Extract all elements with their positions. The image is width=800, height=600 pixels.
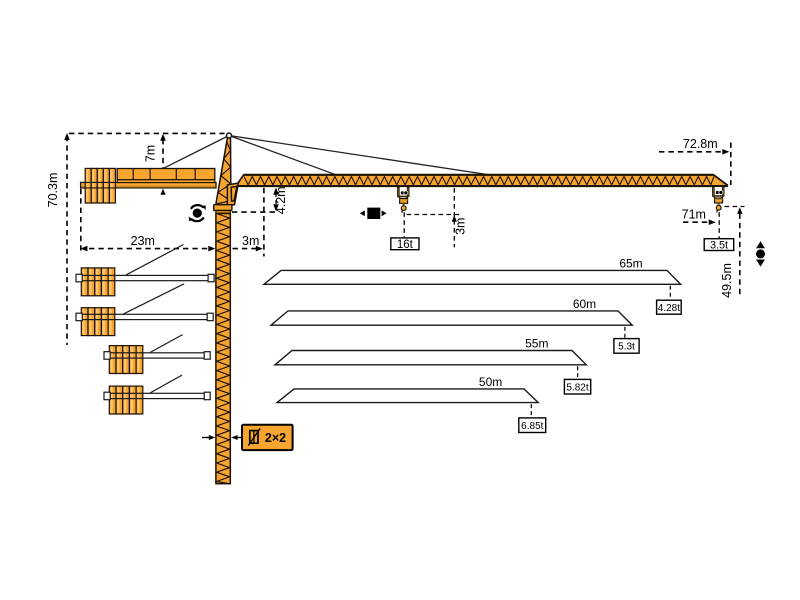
svg-text:6.85t: 6.85t <box>521 421 543 432</box>
svg-text:4.28t: 4.28t <box>658 303 680 314</box>
svg-text:70.3m: 70.3m <box>46 173 60 208</box>
svg-text:65m: 65m <box>619 257 642 271</box>
svg-text:55m: 55m <box>525 337 548 351</box>
svg-text:5.3t: 5.3t <box>618 342 635 353</box>
svg-text:5.82t: 5.82t <box>566 382 588 393</box>
svg-text:16t: 16t <box>397 239 414 251</box>
svg-text:3.5t: 3.5t <box>710 239 728 251</box>
svg-text:60m: 60m <box>573 297 596 311</box>
svg-text:7m: 7m <box>144 145 158 162</box>
svg-text:71m: 71m <box>682 207 706 221</box>
svg-text:3m: 3m <box>242 234 259 248</box>
svg-text:2×2: 2×2 <box>265 431 286 445</box>
svg-text:4.2m: 4.2m <box>274 186 288 214</box>
svg-text:23m: 23m <box>131 234 155 248</box>
svg-text:50m: 50m <box>479 375 502 389</box>
svg-text:3m: 3m <box>453 218 467 235</box>
svg-text:49.5m: 49.5m <box>720 263 734 298</box>
svg-text:72.8m: 72.8m <box>683 137 718 151</box>
